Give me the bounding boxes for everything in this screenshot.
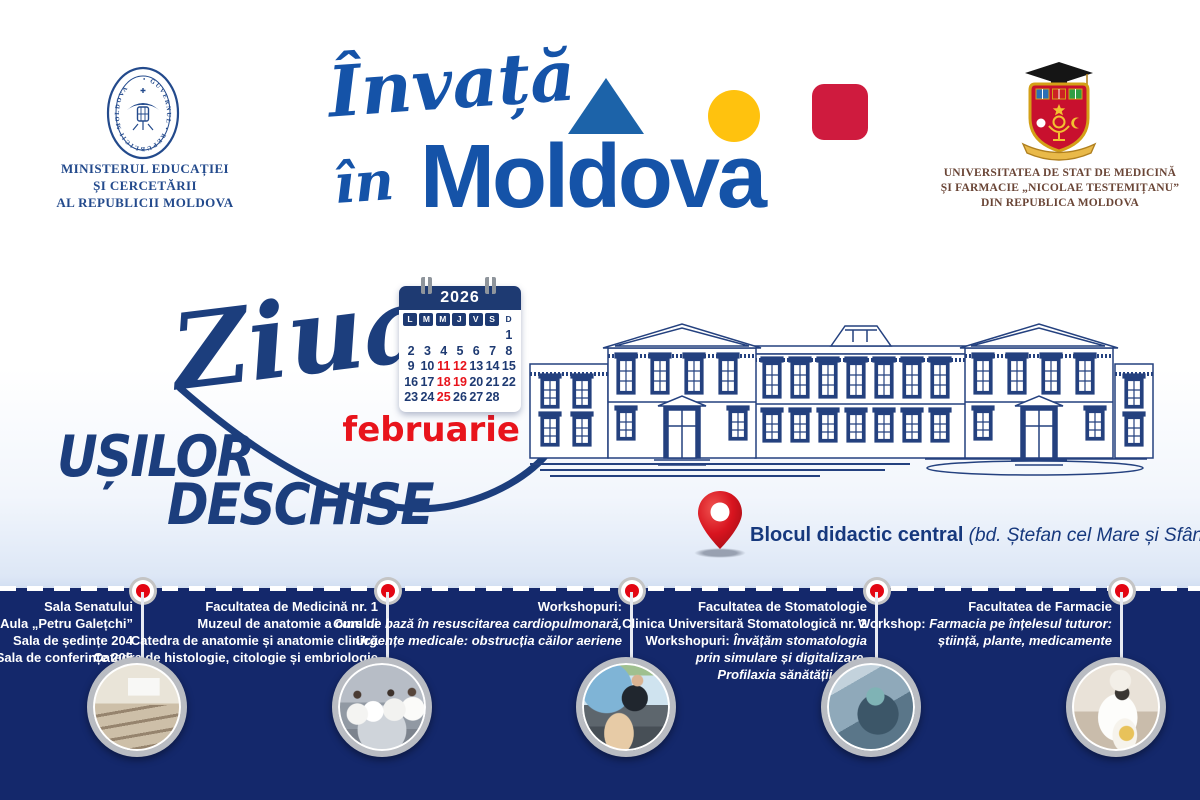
calendar-ring-icon	[421, 277, 432, 294]
ministry-line-1: MINISTERUL EDUCAȚIEI	[10, 160, 280, 177]
ministry-name: MINISTERUL EDUCAȚIEI ȘI CERCETĂRII AL RE…	[10, 160, 280, 211]
event-title-word-2: DESCHISE	[167, 472, 433, 538]
university-crest	[1005, 60, 1113, 164]
calendar-cell	[403, 328, 419, 344]
stop-5-line-prefix: Workshop:	[858, 616, 929, 631]
stop-4-line-prefix: Workshopuri:	[645, 633, 733, 648]
calendar-ring-icon	[485, 277, 496, 294]
calendar-year: 2026	[399, 286, 521, 310]
calendar-cell: 26	[452, 390, 468, 406]
stop-4-line: Profilaxia sănătății orale	[527, 666, 867, 683]
circle-icon	[708, 90, 760, 142]
stop-5-line: știință, plante, medicamente	[772, 632, 1112, 649]
calendar-cell: 24	[419, 390, 435, 406]
calendar-cell: 7	[484, 344, 500, 360]
event-month: februarie	[310, 410, 520, 450]
day-header: J	[452, 313, 466, 326]
timeline-connector	[1120, 592, 1123, 658]
calendar-cell-highlighted: 18	[436, 375, 452, 391]
university-line-1: UNIVERSITATEA DE STAT DE MEDICINĂ	[920, 166, 1200, 181]
calendar-cell-highlighted: 19	[452, 375, 468, 391]
calendar-cell	[468, 328, 484, 344]
calendar-cell: 6	[468, 344, 484, 360]
calendar-cell	[484, 328, 500, 344]
day-header: S	[485, 313, 499, 326]
calendar-cell: 23	[403, 390, 419, 406]
brand-script-invata: Învață	[325, 33, 578, 133]
calendar-cell: 27	[468, 390, 484, 406]
calendar-grid: 1 2 3 4 5 6 7 8 9 10 11 12 13 14 15 16 1…	[399, 327, 521, 406]
stop-5-line: Workshop: Farmacia pe înțelesul tuturor:	[772, 615, 1112, 632]
calendar-cell: 17	[419, 375, 435, 391]
calendar-cell	[436, 328, 452, 344]
calendar-cell: 28	[484, 390, 500, 406]
timeline-dashed-line	[0, 586, 1200, 591]
calendar-cell: 2	[403, 344, 419, 360]
building-illustration	[515, 296, 1160, 481]
square-icon	[812, 84, 868, 140]
ministry-line-3: AL REPUBLICII MOLDOVA	[10, 194, 280, 211]
university-line-2: ȘI FARMACIE „NICOLAE TESTEMIȚANU”	[920, 181, 1200, 196]
calendar-cell: 5	[452, 344, 468, 360]
calendar-cell: 14	[484, 359, 500, 375]
day-header: M	[436, 313, 450, 326]
day-header: M	[419, 313, 433, 326]
photo-facultatea-medicina	[332, 657, 432, 757]
photo-sala-senatului	[87, 657, 187, 757]
calendar-cell: 3	[419, 344, 435, 360]
calendar-cell-highlighted: 25	[436, 390, 452, 406]
stop-5-line: Facultatea de Farmacie	[772, 598, 1112, 615]
calendar-cell: 9	[403, 359, 419, 375]
stop-2-line: Catedra de histologie, citologie și embr…	[38, 649, 378, 666]
calendar-cell	[452, 328, 468, 344]
calendar-cell: 20	[468, 375, 484, 391]
university-name: UNIVERSITATEA DE STAT DE MEDICINĂ ȘI FAR…	[920, 166, 1200, 211]
photo-farmacie	[1066, 657, 1166, 757]
brand-script-in: în	[332, 148, 396, 216]
calendar: 2026 L M M J V S D 1 2 3 4 5 6 7 8 9 10 …	[399, 286, 521, 412]
books-icons	[1036, 89, 1082, 99]
eagle-icon	[127, 88, 159, 130]
university-line-3: DIN REPUBLICA MOLDOVA	[920, 196, 1200, 211]
stop-5-text: Facultatea de Farmacie Workshop: Farmaci…	[772, 598, 1112, 649]
location-line: Blocul didactic central (bd. Ștefan cel …	[750, 524, 1200, 547]
day-header: V	[469, 313, 483, 326]
brand-wordmark-moldova: Moldova	[420, 126, 764, 229]
calendar-cell-highlighted: 12	[452, 359, 468, 375]
triangle-icon	[568, 78, 644, 134]
stop-4-line: prin simulare și digitalizare,	[527, 649, 867, 666]
ministry-line-2: ȘI CERCETĂRII	[10, 177, 280, 194]
stop-5-line-italic: Farmacia pe înțelesul tuturor:	[929, 616, 1112, 631]
calendar-day-headers: L M M J V S D	[399, 310, 521, 327]
calendar-cell: 13	[468, 359, 484, 375]
sphere-icon	[1037, 119, 1046, 128]
calendar-cell: 4	[436, 344, 452, 360]
calendar-cell: 10	[419, 359, 435, 375]
calendar-cell	[419, 328, 435, 344]
location-address: (bd. Ștefan cel Mare și Sfânt, 165)	[963, 525, 1200, 546]
calendar-cell: 21	[484, 375, 500, 391]
photo-workshop-resuscitare	[576, 657, 676, 757]
location-name: Blocul didactic central	[750, 524, 963, 546]
day-header: L	[403, 313, 417, 326]
ministry-seal: • GUVERNUL • REPUBLICII MOLDOVA	[105, 66, 181, 160]
location-pin-icon	[697, 490, 743, 550]
day-header: D	[502, 313, 516, 326]
photo-stomatologie	[821, 657, 921, 757]
calendar-cell: 16	[403, 375, 419, 391]
calendar-cell-highlighted: 11	[436, 359, 452, 375]
